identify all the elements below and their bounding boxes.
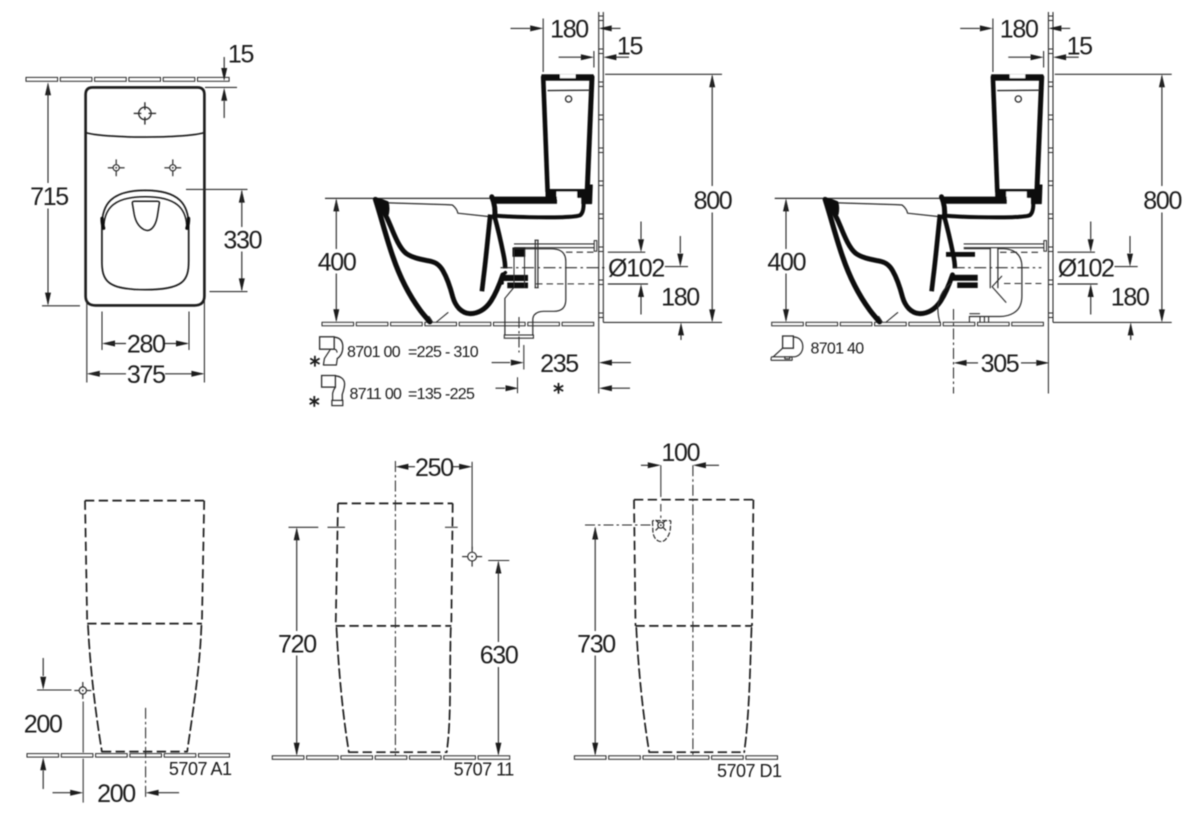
svg-text:720: 720 xyxy=(278,630,316,658)
svg-text:Ø102: Ø102 xyxy=(608,254,664,282)
svg-text:8711 00: 8711 00 xyxy=(350,386,403,403)
svg-text:15: 15 xyxy=(1067,32,1093,60)
svg-text:235: 235 xyxy=(540,350,578,378)
svg-text:8701 00: 8701 00 xyxy=(347,344,401,361)
svg-text:375: 375 xyxy=(127,361,165,389)
svg-text:15: 15 xyxy=(617,32,643,60)
svg-text:8701 40: 8701 40 xyxy=(811,341,865,358)
svg-text:5707 A1: 5707 A1 xyxy=(169,759,232,779)
svg-text:180: 180 xyxy=(661,283,699,311)
svg-text:200: 200 xyxy=(24,710,62,738)
svg-text:180: 180 xyxy=(1000,15,1038,43)
svg-text:5707 11: 5707 11 xyxy=(454,759,515,779)
svg-text:305: 305 xyxy=(981,350,1019,378)
svg-text:180: 180 xyxy=(1111,283,1149,311)
svg-text:330: 330 xyxy=(223,226,261,254)
svg-text:15: 15 xyxy=(228,41,254,69)
svg-text:730: 730 xyxy=(577,630,615,658)
svg-text:250: 250 xyxy=(415,454,453,482)
svg-text:=225 - 310: =225 - 310 xyxy=(408,344,479,361)
svg-text:800: 800 xyxy=(1143,187,1181,215)
svg-text:630: 630 xyxy=(480,642,518,670)
svg-text:100: 100 xyxy=(661,439,699,467)
svg-text:400: 400 xyxy=(318,249,356,277)
svg-text:=135 -225: =135 -225 xyxy=(408,386,475,403)
svg-text:400: 400 xyxy=(767,249,805,277)
svg-text:Ø102: Ø102 xyxy=(1058,254,1114,282)
svg-text:200: 200 xyxy=(97,780,135,808)
svg-text:5707 D1: 5707 D1 xyxy=(717,761,782,781)
svg-text:180: 180 xyxy=(550,15,588,43)
svg-text:800: 800 xyxy=(694,187,732,215)
svg-text:280: 280 xyxy=(127,331,165,359)
svg-text:715: 715 xyxy=(30,183,68,211)
